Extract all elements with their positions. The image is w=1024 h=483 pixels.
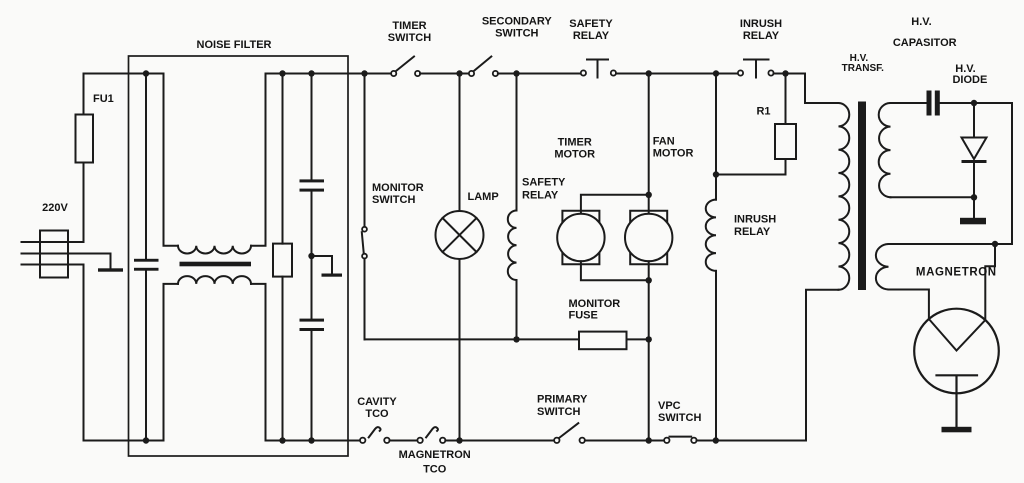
svg-text:SAFETY: SAFETY — [522, 177, 566, 189]
svg-text:SWITCH: SWITCH — [388, 32, 431, 44]
svg-text:TIMER: TIMER — [392, 20, 426, 32]
svg-text:VPC: VPC — [658, 400, 681, 412]
svg-text:SECONDARY: SECONDARY — [482, 16, 553, 28]
svg-text:SWITCH: SWITCH — [495, 28, 538, 40]
svg-text:INRUSH: INRUSH — [734, 214, 776, 226]
svg-text:SAFETY: SAFETY — [569, 18, 613, 30]
svg-text:RELAY: RELAY — [573, 30, 610, 42]
svg-text:DIODE: DIODE — [952, 74, 987, 86]
svg-text:SWITCH: SWITCH — [537, 406, 580, 418]
svg-text:NOISE FILTER: NOISE FILTER — [197, 39, 272, 51]
svg-text:FU1: FU1 — [93, 93, 114, 105]
svg-text:FUSE: FUSE — [569, 310, 598, 322]
svg-text:RELAY: RELAY — [522, 190, 559, 202]
svg-text:MONITOR: MONITOR — [372, 182, 424, 194]
svg-text:TIMER: TIMER — [558, 137, 592, 149]
svg-text:MONITOR: MONITOR — [569, 298, 621, 310]
svg-text:SWITCH: SWITCH — [658, 412, 701, 424]
svg-text:MOTOR: MOTOR — [653, 148, 694, 160]
svg-text:R1: R1 — [756, 106, 770, 118]
svg-text:RELAY: RELAY — [743, 30, 780, 42]
svg-text:PRIMARY: PRIMARY — [537, 394, 588, 406]
svg-text:LAMP: LAMP — [468, 191, 499, 203]
svg-text:TCO: TCO — [423, 464, 447, 476]
svg-text:MOTOR: MOTOR — [554, 149, 595, 161]
svg-text:TRANSF.: TRANSF. — [842, 63, 884, 74]
svg-text:MAGNETRON: MAGNETRON — [399, 449, 471, 461]
svg-text:CAVITY: CAVITY — [357, 396, 397, 408]
svg-text:H.V.: H.V. — [911, 16, 931, 28]
svg-text:MAGNETRON: MAGNETRON — [916, 267, 997, 279]
svg-text:SWITCH: SWITCH — [372, 194, 415, 206]
svg-text:RELAY: RELAY — [734, 226, 771, 238]
svg-text:220V: 220V — [42, 202, 68, 214]
svg-text:TCO: TCO — [365, 408, 389, 420]
svg-text:INRUSH: INRUSH — [740, 18, 782, 30]
svg-text:FAN: FAN — [653, 136, 675, 148]
svg-text:CAPASITOR: CAPASITOR — [893, 37, 957, 49]
